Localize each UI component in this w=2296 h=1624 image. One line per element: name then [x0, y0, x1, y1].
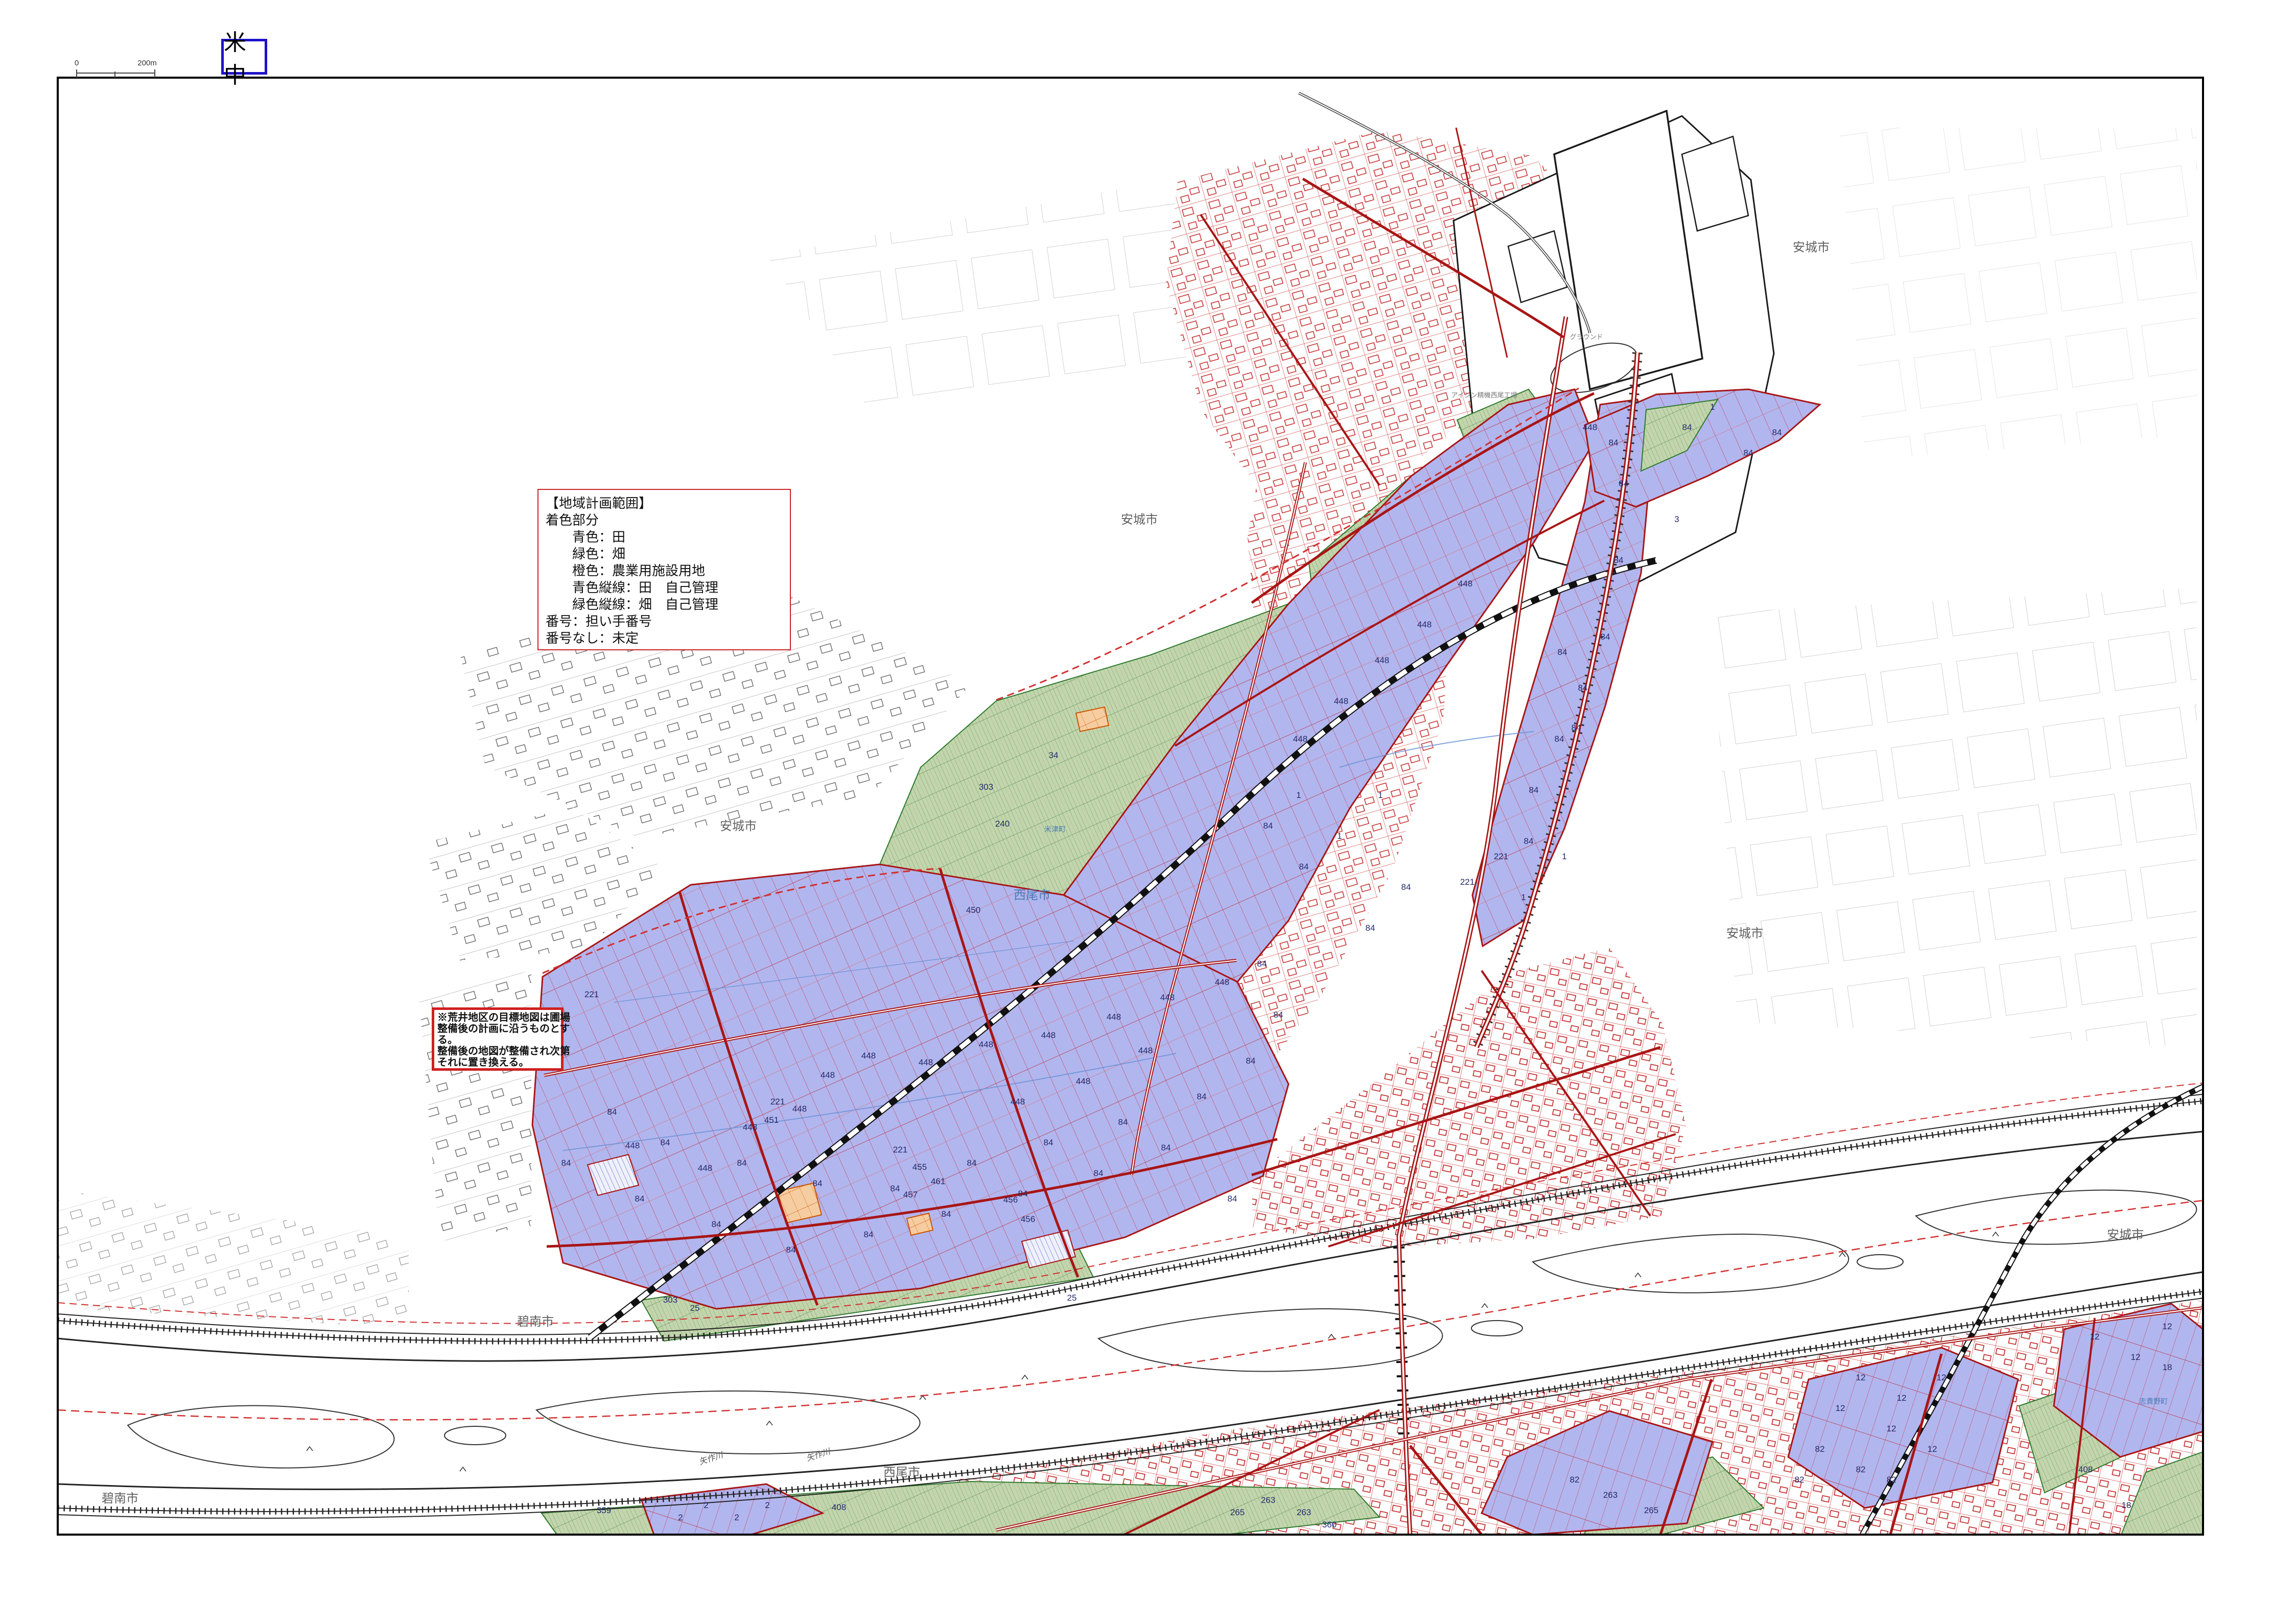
- parcel-number: 84: [1401, 882, 1411, 892]
- place-label: 米津町: [1044, 825, 1066, 833]
- city-label: 安城市: [720, 819, 757, 833]
- parcel-number: 303: [979, 782, 993, 792]
- note-box: ※荒井地区の目標地図は圃場整備後の計画に沿うものとする。整備後の地図が整備され次…: [432, 1007, 564, 1071]
- note-line: る。: [437, 1034, 558, 1046]
- parcel-number: 18: [2122, 1500, 2131, 1510]
- parcel-number: 84: [1682, 422, 1692, 432]
- city-label: 安城市: [1726, 927, 1763, 940]
- parcel-number: 84: [1529, 785, 1539, 795]
- parcel-number: 461: [931, 1176, 945, 1186]
- legend-line: 【地域計画範囲】: [546, 495, 790, 512]
- parcel-number: 84: [1555, 734, 1564, 744]
- cadastral-map-canvas: 安城市安城市安城市安城市安城市碧南市碧南市西尾市西尾市 矢作川矢作川 アイシン精…: [0, 0, 2296, 1624]
- parcel-number: 1: [1562, 852, 1566, 861]
- city-label: 安城市: [2107, 1228, 2144, 1242]
- parcel-number: 2: [704, 1500, 708, 1510]
- parcel-number: 84: [1044, 1138, 1053, 1147]
- parcel-number: 448: [1041, 1030, 1056, 1040]
- parcel-number: 265: [1644, 1505, 1658, 1515]
- parcel-number: 84: [1772, 428, 1782, 437]
- parcel-number: 82: [1795, 1475, 1805, 1485]
- parcel-number: 221: [893, 1145, 907, 1155]
- parcel-number: 448: [1160, 993, 1175, 1002]
- parcel-number: 84: [561, 1158, 571, 1168]
- legend-line: 青色縦線：田 自己管理: [546, 579, 790, 596]
- sheet-title-box: 米中: [221, 39, 267, 75]
- parcel-number: 84: [1578, 683, 1588, 693]
- parcel-number: 448: [1334, 696, 1348, 706]
- parcel-number: 359: [597, 1505, 611, 1515]
- parcel-number: 448: [1138, 1046, 1153, 1055]
- parcel-number: 84: [967, 1158, 977, 1168]
- parcel-number: 25: [690, 1303, 700, 1313]
- parcel-number: 408: [832, 1502, 846, 1512]
- parcel-number: 2: [734, 1513, 739, 1522]
- place-label: グラウンド: [1569, 333, 1603, 341]
- parcel-number: 263: [1261, 1495, 1275, 1505]
- parcel-number: 84: [1614, 555, 1624, 565]
- legend-line: 緑色縦線：畑 自己管理: [546, 596, 790, 613]
- parcel-number: 84: [1299, 862, 1309, 872]
- place-label: アイシン精機西尾工場: [1451, 391, 1517, 399]
- parcel-number: 303: [663, 1295, 677, 1305]
- note-line: それに置き換える。: [437, 1057, 558, 1068]
- parcel-number: 1: [1378, 790, 1383, 800]
- note-line: 整備後の計画に沿うものとす: [437, 1023, 558, 1034]
- parcel-number: 448: [1011, 1097, 1025, 1107]
- parcel-number: 448: [743, 1122, 757, 1132]
- parcel-number: 84: [813, 1179, 823, 1188]
- parcel-number: 84: [1744, 448, 1753, 458]
- parcel-number: 240: [995, 819, 1010, 829]
- parcel-number: 82: [1887, 1475, 1896, 1485]
- legend-line: 橙色：農業用施設用地: [546, 562, 790, 579]
- parcel-number: 84: [1263, 821, 1273, 831]
- parcel-number: 457: [903, 1190, 918, 1199]
- map-content: 安城市安城市安城市安城市安城市碧南市碧南市西尾市西尾市 矢作川矢作川 アイシン精…: [58, 93, 2203, 1535]
- parcel-number: 84: [1161, 1143, 1171, 1152]
- parcel-number: 448: [1417, 620, 1432, 629]
- parcel-number: 84: [1572, 723, 1581, 733]
- parcel-number: 25: [1067, 1293, 1077, 1303]
- note-line: 整備後の地図が整備され次第: [437, 1046, 558, 1057]
- parcel-number: 221: [1460, 877, 1474, 887]
- parcel-number: 12: [2090, 1332, 2100, 1341]
- parcel-number: 221: [1494, 852, 1508, 861]
- scale-zero-label: 0: [75, 59, 79, 67]
- parcel-number: 263: [1603, 1490, 1618, 1500]
- parcel-number: 84: [1601, 632, 1610, 642]
- parcel-number: 84: [1609, 438, 1619, 448]
- place-label: 志貴野町: [2139, 1397, 2168, 1405]
- parcel-number: 263: [1297, 1508, 1311, 1517]
- parcel-number: 84: [661, 1138, 670, 1147]
- parcel-number: 448: [1458, 579, 1472, 589]
- legend-line: 番号：担い手番号: [546, 613, 790, 630]
- city-label: 安城市: [1121, 513, 1158, 527]
- parcel-number: 1: [1710, 402, 1715, 412]
- city-label: 碧南市: [517, 1315, 554, 1329]
- parcel-number: 448: [1583, 422, 1597, 432]
- parcel-number: 12: [1928, 1444, 1937, 1454]
- legend-line: 緑色：畑: [546, 546, 790, 562]
- parcel-number: 448: [792, 1104, 807, 1114]
- parcel-number: 84: [1274, 1010, 1283, 1020]
- note-line: ※荒井地区の目標地図は圃場: [437, 1012, 558, 1023]
- parcel-number: 84: [1246, 1056, 1256, 1066]
- parcel-number: 448: [1107, 1012, 1121, 1022]
- legend-line: 青色：田: [546, 529, 790, 546]
- parcel-number: 84: [891, 1184, 900, 1193]
- parcel-number: 82: [1570, 1475, 1580, 1485]
- parcel-number: 84: [1366, 923, 1375, 933]
- parcel-number: 448: [1076, 1076, 1090, 1086]
- city-label: 安城市: [1793, 241, 1830, 254]
- parcel-number: 84: [737, 1158, 747, 1168]
- parcel-number: 84: [942, 1209, 951, 1219]
- parcel-number: 84: [786, 1245, 796, 1255]
- parcel-number: 448: [1293, 734, 1307, 744]
- parcel-number: 84: [864, 1230, 874, 1239]
- parcel-number: 12: [2131, 1352, 2141, 1362]
- parcel-number: 221: [584, 990, 599, 999]
- parcel-number: 3: [1674, 514, 1679, 524]
- parcel-number: 84: [1197, 1092, 1207, 1101]
- parcel-number: 1: [1521, 892, 1526, 902]
- parcel-number: 448: [821, 1070, 835, 1080]
- parcel-number: 448: [698, 1163, 712, 1173]
- parcel-number: 84: [1118, 1117, 1128, 1127]
- parcel-number: 2: [678, 1513, 683, 1522]
- parcel-number: 360: [1322, 1520, 1337, 1529]
- legend-line: 着色部分: [546, 512, 790, 529]
- parcel-number: 12: [1836, 1403, 1845, 1413]
- parcel-number: 12: [1937, 1373, 1947, 1382]
- parcel-number: 12: [2163, 1322, 2172, 1331]
- parcel-number: 12: [1897, 1393, 1907, 1403]
- parcel-number: 84: [1094, 1168, 1104, 1178]
- parcel-number: 12: [1887, 1424, 1896, 1433]
- parcel-number: 84: [1558, 647, 1567, 657]
- parcel-number: 18: [2163, 1362, 2172, 1372]
- parcel-number: 265: [1230, 1508, 1245, 1517]
- city-label: 碧南市: [102, 1492, 138, 1505]
- parcel-number: 455: [912, 1162, 927, 1172]
- parcel-number: 448: [919, 1057, 933, 1067]
- parcel-number: 34: [1049, 750, 1059, 760]
- sheet-title: 米中: [224, 24, 265, 89]
- parcel-number: 12: [1856, 1373, 1866, 1382]
- parcel-number: 456: [1003, 1195, 1018, 1205]
- parcel-number: 448: [861, 1051, 876, 1061]
- parcel-number: 448: [625, 1141, 640, 1150]
- scale-bar: 0 200m: [75, 59, 157, 78]
- parcel-number: 1: [1337, 831, 1342, 841]
- parcel-number: 84: [635, 1194, 645, 1204]
- parcel-number: 82: [1815, 1444, 1825, 1454]
- parcel-number: 456: [1021, 1214, 1035, 1224]
- parcel-number: 448: [979, 1040, 993, 1049]
- parcel-number: 84: [712, 1219, 721, 1229]
- parcel-number: 84: [1619, 479, 1629, 488]
- parcel-number: 84: [607, 1107, 617, 1117]
- parcel-number: 221: [770, 1097, 785, 1107]
- city-label: 西尾市: [1014, 888, 1050, 902]
- parcel-number: 84: [1257, 959, 1267, 969]
- parcel-number: 84: [1524, 836, 1534, 846]
- parcel-number: 84: [1018, 1189, 1028, 1198]
- parcel-number: 408: [2078, 1465, 2093, 1474]
- city-label: 西尾市: [883, 1466, 920, 1479]
- map-sheet: 安城市安城市安城市安城市安城市碧南市碧南市西尾市西尾市 矢作川矢作川 アイシン精…: [0, 0, 2296, 1624]
- legend-line: 番号なし：未定: [546, 630, 790, 647]
- parcel-number: 84: [1228, 1194, 1237, 1204]
- parcel-number: 82: [1856, 1465, 1866, 1474]
- parcel-number: 448: [1215, 977, 1229, 987]
- parcel-number: 1: [1296, 790, 1301, 800]
- parcel-number: 448: [1375, 655, 1389, 665]
- parcel-number: 2: [765, 1500, 769, 1510]
- legend-box: 【地域計画範囲】着色部分 青色：田 緑色：畑 橙色：農業用施設用地 青色縦線：田…: [537, 489, 791, 650]
- scale-end-label: 200m: [137, 59, 157, 67]
- parcel-number: 451: [764, 1115, 779, 1125]
- parcel-number: 450: [966, 905, 980, 915]
